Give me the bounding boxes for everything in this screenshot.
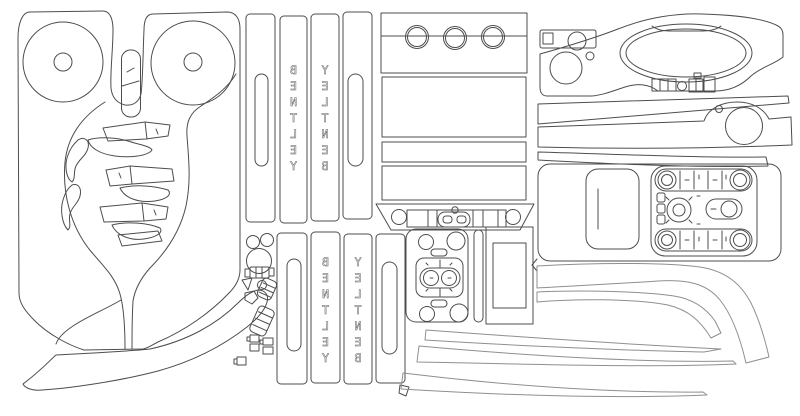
- button-strip-panel: [376, 204, 534, 230]
- cut-template-sheet: B E N T L E Y Y E L T N E B B E N T: [0, 0, 800, 416]
- svg-text:Y: Y: [354, 255, 361, 269]
- swoosh-inner: [537, 291, 721, 338]
- armrest-lid: [586, 169, 639, 249]
- vent-strip-hole: [726, 108, 763, 145]
- hvac-knob: [482, 26, 505, 49]
- svg-text:B: B: [322, 255, 329, 269]
- center-pillar-part: [122, 50, 141, 117]
- svg-text:B: B: [321, 159, 328, 173]
- window-switch-row-bottom: [655, 229, 752, 251]
- trim-rectangle-thin: [382, 142, 526, 162]
- slot-pill: [255, 74, 268, 166]
- svg-text:T: T: [321, 111, 328, 125]
- svg-text:L: L: [354, 287, 361, 301]
- pod-corner-button: [447, 232, 465, 250]
- console-panel: [538, 164, 781, 261]
- sill-strip-slot: [343, 12, 372, 219]
- switch-knob-inner: [662, 175, 673, 186]
- left-gauge-ring: [23, 22, 103, 102]
- pod-corner-button: [450, 304, 468, 322]
- svg-text:E: E: [322, 271, 329, 285]
- kick-plate-band: [23, 290, 268, 390]
- swoosh-thin-1: [425, 330, 721, 352]
- svg-text:L: L: [290, 127, 297, 141]
- slot-pill: [348, 74, 363, 166]
- louvre-side-squiggles: [62, 138, 89, 230]
- svg-text:L: L: [321, 95, 328, 109]
- rotary-knob-ring: [667, 198, 691, 222]
- svg-text:T: T: [354, 303, 361, 317]
- svg-text:E: E: [321, 79, 328, 93]
- svg-text:E: E: [290, 79, 297, 93]
- swoosh-thin-2: [417, 346, 736, 366]
- switch-knob-inner: [734, 174, 747, 187]
- rocker-pad: [457, 216, 466, 223]
- pentagon-part: [245, 291, 258, 304]
- cowl-flare-seam: [56, 300, 121, 344]
- hvac-knob-inner: [408, 28, 427, 47]
- clip-squares: [234, 335, 273, 365]
- bentley-lettering-mirrored-down: B E N T L E Y: [322, 255, 329, 365]
- fascia-outline: [18, 11, 240, 350]
- switch-knob-inner: [734, 234, 747, 247]
- hvac-knob-inner: [446, 29, 465, 48]
- switch-knob: [658, 171, 676, 189]
- upper-strip: [538, 96, 789, 124]
- svg-text:T: T: [290, 111, 297, 125]
- console-switch-pod: [406, 229, 468, 322]
- pod-slot: [431, 249, 447, 256]
- cowl-seam-left: [64, 102, 125, 349]
- svg-text:L: L: [322, 319, 329, 333]
- vent-hole: [550, 52, 582, 84]
- trim-rectangle: [382, 77, 526, 137]
- svg-text:N: N: [321, 127, 328, 141]
- side-button-stack: [657, 193, 665, 224]
- segmented-switch-part: [245, 267, 274, 278]
- end-button: [392, 210, 407, 225]
- pod-corner-button: [420, 307, 435, 322]
- center-stack-panels: [376, 13, 534, 230]
- right-gauge-hub: [184, 53, 202, 71]
- cowl-seam-right: [132, 74, 236, 349]
- pod-slot: [431, 300, 447, 307]
- small-corner-part: [399, 385, 409, 396]
- svg-text:N: N: [322, 287, 329, 301]
- window-switch-row-top: [655, 169, 752, 191]
- hvac-knob-inner: [484, 28, 503, 47]
- triangle-part: [242, 278, 252, 290]
- left-gauge-hub: [54, 53, 72, 71]
- svg-text:Y: Y: [322, 351, 329, 365]
- sill-strip-slot: [277, 233, 307, 384]
- sensor-hole: [586, 52, 594, 60]
- stalk-disc: [678, 82, 687, 91]
- svg-text:B: B: [290, 63, 297, 77]
- template-drawing: B E N T L E Y Y E L T N E B B E N T: [0, 0, 800, 416]
- right-gauge-ring: [151, 21, 235, 105]
- instrument-binnacle-inner: [626, 29, 746, 77]
- svg-text:N: N: [354, 319, 361, 333]
- instrument-binnacle-opening: [620, 24, 752, 82]
- hvac-knob: [406, 26, 429, 49]
- svg-text:Y: Y: [290, 159, 297, 173]
- framed-rectangle-part: [486, 227, 537, 324]
- end-button: [506, 210, 521, 225]
- bentley-lettering-mirrored-down: B E N T L E Y: [290, 63, 297, 173]
- pod-corner-button: [419, 235, 434, 250]
- narrow-vertical-strip: [474, 230, 483, 322]
- sill-strips-top: B E N T L E Y Y E L T N E B: [246, 12, 372, 223]
- dash-trim-strips: [538, 96, 792, 167]
- switch-knob-inner: [662, 235, 673, 246]
- svg-text:E: E: [354, 335, 361, 349]
- slot-pill: [382, 262, 397, 354]
- curved-trim-swooshes: [401, 264, 769, 397]
- louvre-slats: [88, 122, 174, 246]
- start-button: [721, 201, 737, 217]
- bentley-lettering-mirrored-up: Y E L T N E B: [354, 255, 361, 365]
- svg-text:Y: Y: [321, 63, 328, 77]
- svg-text:E: E: [321, 143, 328, 157]
- small-parts-column: [234, 234, 278, 366]
- sill-strips-bottom: B E N T L E Y Y E L T N E B: [277, 232, 409, 396]
- inner-window: [493, 243, 526, 308]
- small-disc: [247, 236, 260, 249]
- svg-text:E: E: [322, 335, 329, 349]
- sill-strip-slot: [246, 14, 275, 222]
- hvac-knob: [444, 27, 467, 50]
- trim-rectangle: [382, 166, 526, 200]
- small-disc: [261, 234, 274, 247]
- sill-strip-slot: [376, 234, 405, 383]
- start-button-pill: [706, 199, 742, 219]
- pod-outline: [406, 229, 468, 322]
- rotary-knob-center: [673, 204, 685, 216]
- knob-pill: [420, 268, 460, 288]
- knob-panel: [381, 13, 527, 73]
- svg-text:E: E: [290, 143, 297, 157]
- gauge-fascia-panel: [18, 11, 240, 350]
- dash-top-assembly: [540, 14, 783, 96]
- hatched-part-2: [249, 305, 276, 337]
- rocker-pad: [443, 216, 452, 223]
- svg-text:B: B: [354, 351, 361, 365]
- svg-text:N: N: [290, 95, 297, 109]
- slot-pill: [287, 259, 301, 351]
- svg-text:T: T: [322, 303, 329, 317]
- svg-text:E: E: [354, 271, 361, 285]
- binnacle-top-notch: [652, 26, 721, 31]
- switch-knob: [658, 231, 676, 249]
- swoosh-thin-3: [401, 373, 707, 397]
- bentley-lettering-mirrored-up: Y E L T N E B: [321, 63, 328, 173]
